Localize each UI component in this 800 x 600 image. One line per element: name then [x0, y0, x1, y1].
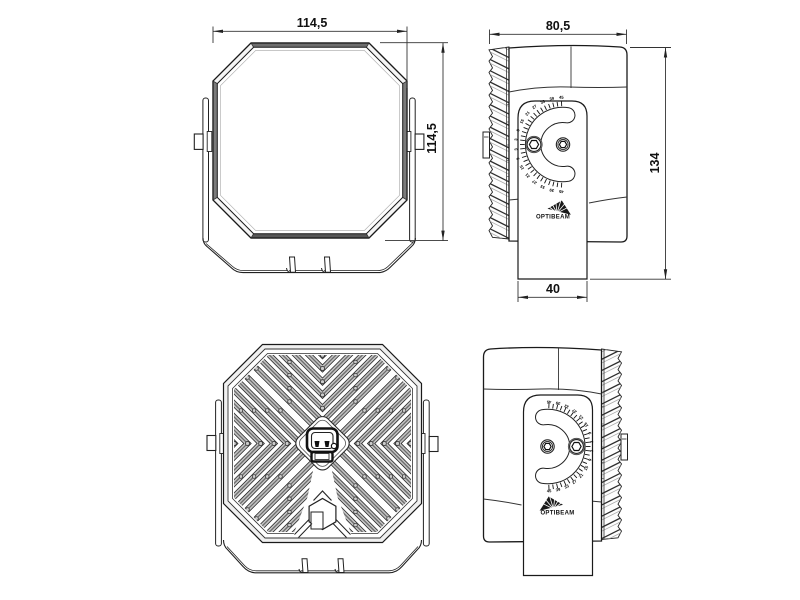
- svg-text:134: 134: [648, 153, 662, 174]
- svg-text:40: 40: [546, 282, 560, 296]
- svg-text:80,5: 80,5: [546, 19, 570, 33]
- svg-text:114,5: 114,5: [297, 16, 328, 30]
- svg-text:114,5: 114,5: [425, 123, 439, 154]
- svg-text:OPTIBEAM: OPTIBEAM: [540, 511, 574, 517]
- svg-text:OPTIBEAM: OPTIBEAM: [536, 215, 570, 221]
